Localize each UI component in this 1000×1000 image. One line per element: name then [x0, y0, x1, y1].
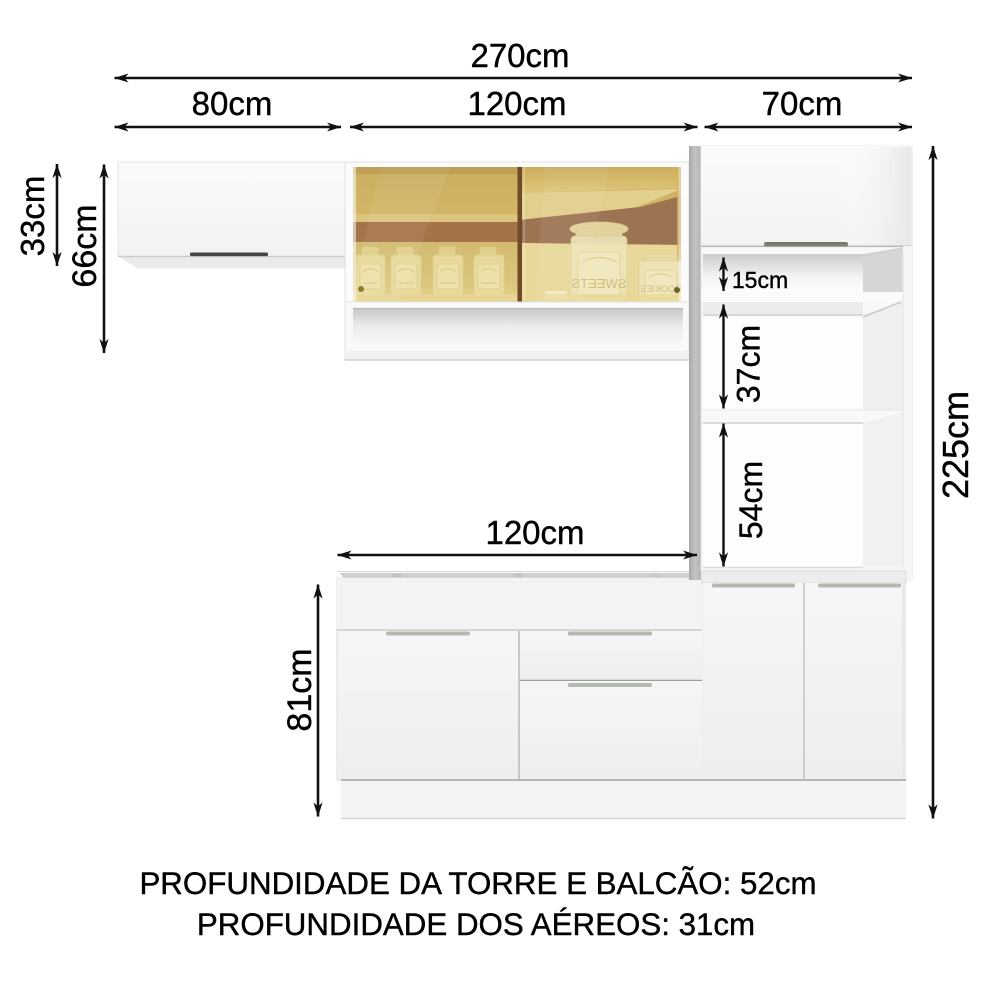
- svg-text:66cm: 66cm: [66, 204, 104, 287]
- svg-text:80cm: 80cm: [192, 85, 273, 122]
- svg-text:37cm: 37cm: [731, 325, 767, 403]
- svg-text:PROFUNDIDADE DA TORRE E BALCÃO: PROFUNDIDADE DA TORRE E BALCÃO: 52cm: [139, 866, 816, 901]
- svg-text:33cm: 33cm: [14, 176, 51, 257]
- svg-text:120cm: 120cm: [485, 514, 584, 551]
- svg-text:225cm: 225cm: [935, 391, 976, 499]
- svg-text:54cm: 54cm: [733, 461, 769, 539]
- svg-text:270cm: 270cm: [470, 37, 569, 74]
- svg-text:81cm: 81cm: [281, 648, 319, 731]
- svg-text:70cm: 70cm: [762, 85, 843, 122]
- svg-text:15cm: 15cm: [732, 267, 788, 293]
- svg-text:120cm: 120cm: [467, 85, 566, 122]
- svg-text:PROFUNDIDADE DOS AÉREOS: 31cm: PROFUNDIDADE DOS AÉREOS: 31cm: [197, 907, 755, 942]
